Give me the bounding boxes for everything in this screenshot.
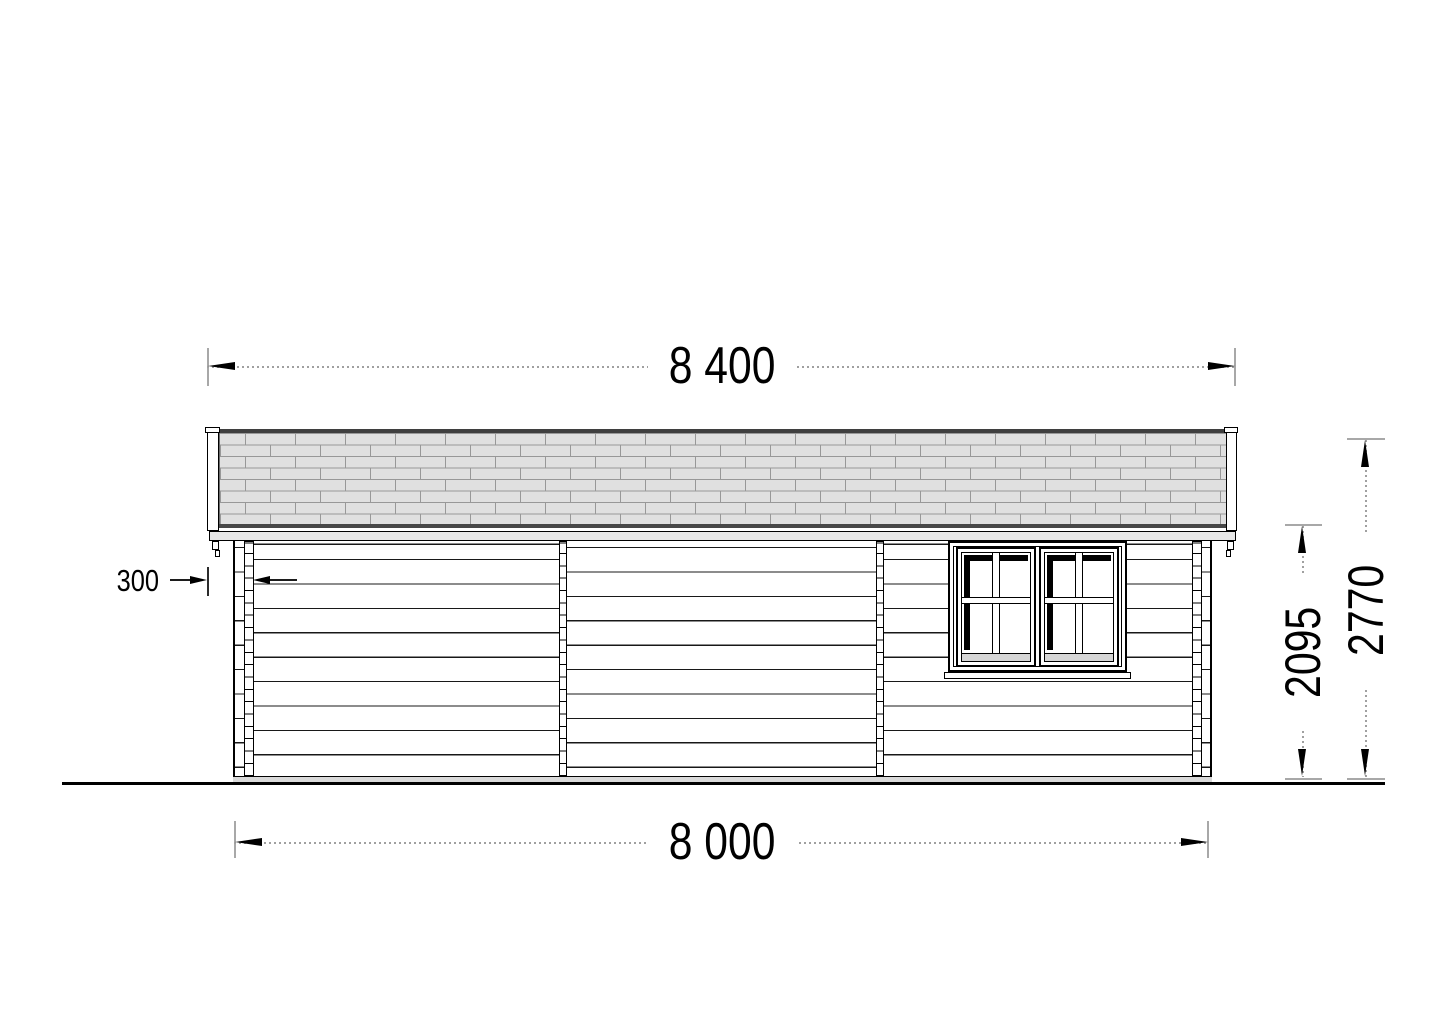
sash-bottom-rail — [1044, 654, 1114, 662]
dim-arrow-up-icon — [1298, 526, 1306, 553]
corner-log-column-right — [1192, 541, 1202, 776]
fascia-bracket-left — [212, 541, 219, 550]
dim-base-width-value: 8 000 — [669, 816, 776, 868]
window-sill — [944, 672, 1131, 679]
roof-shingles — [219, 433, 1229, 524]
wall-log-joint-column-1 — [559, 541, 567, 776]
cabin-side-elevation-drawing: 8 400 300 8 000 2095 2770 — [0, 0, 1445, 1021]
dim-total-height-tick-bottom — [1347, 778, 1385, 780]
dim-overhang-tick — [207, 567, 209, 596]
dim-arrow-right-icon — [1208, 362, 1235, 370]
dim-total-height-value: 2770 — [1341, 564, 1391, 655]
roof-fascia-board — [209, 531, 1236, 541]
dim-roof-width-value: 8 400 — [669, 340, 776, 392]
dim-overhang-label: 300 — [108, 565, 168, 595]
sash-bottom-rail — [961, 654, 1031, 662]
ground-line — [62, 782, 1385, 785]
roof-verge-board-right — [1226, 428, 1237, 531]
roof-verge-cap-right — [1224, 427, 1238, 433]
fascia-bracket-right — [1227, 541, 1234, 550]
dim-overhang-value: 300 — [117, 565, 159, 596]
dim-arrow-up-icon — [1361, 440, 1369, 467]
dim-base-width-label: 8 000 — [648, 815, 796, 869]
dim-arrow-left-icon — [235, 838, 262, 846]
fascia-bracket-drop-left — [215, 550, 220, 557]
muntin-horizontal — [962, 597, 1030, 604]
wall-corner-strip-left — [233, 541, 244, 776]
fascia-bracket-drop-right — [1226, 550, 1231, 557]
dim-overhang-leader-left — [170, 579, 192, 581]
dim-total-height-label: 2770 — [1340, 532, 1392, 688]
dim-eave-height-label: 2095 — [1277, 574, 1329, 730]
dim-arrow-right-icon — [1181, 838, 1208, 846]
wall-siding-section-1 — [254, 541, 559, 776]
wall-corner-strip-right — [1202, 541, 1212, 776]
muntin-horizontal — [1045, 597, 1113, 604]
roof-verge-cap-left — [205, 427, 220, 433]
dim-arrow-left-icon — [208, 362, 235, 370]
dim-arrow-down-icon — [1298, 749, 1306, 776]
wall-log-joint-column-2 — [876, 541, 884, 776]
dim-overhang-arrow-right-icon — [190, 576, 207, 584]
window-sash-left — [956, 547, 1036, 667]
dim-overhang-arrow-left-icon — [253, 576, 270, 584]
roof-verge-board-left — [207, 428, 219, 531]
dim-overhang-leader-right — [270, 579, 297, 581]
dim-eave-height-tick-bottom — [1285, 778, 1322, 780]
wall-siding-section-2 — [567, 541, 876, 776]
dim-roof-width-label: 8 400 — [648, 339, 796, 393]
window-glass-left — [961, 552, 1031, 654]
window-sash-right — [1039, 547, 1119, 667]
dim-eave-height-value: 2095 — [1278, 606, 1328, 697]
roof-eave-shadow-strip — [219, 524, 1227, 528]
window-glass-right — [1044, 552, 1114, 654]
dim-arrow-down-icon — [1361, 749, 1369, 776]
